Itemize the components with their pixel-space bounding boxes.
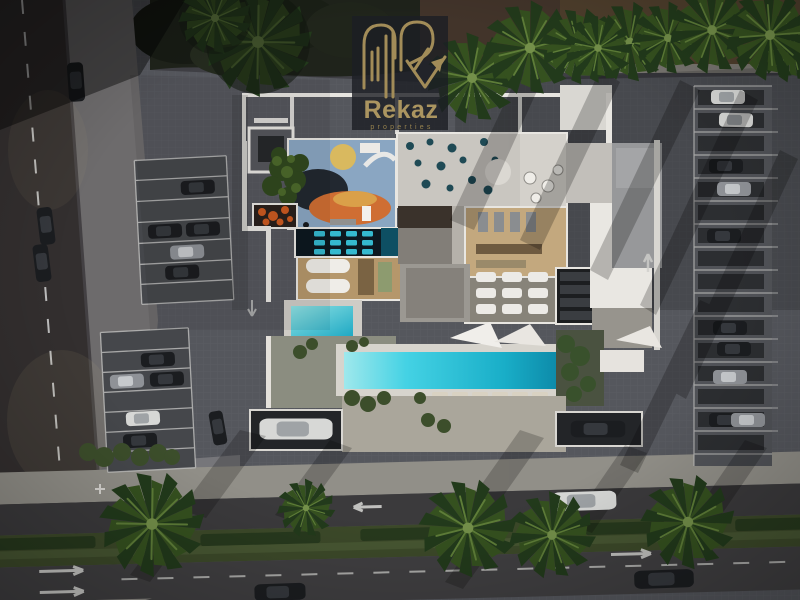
svg-text:Rekaz: Rekaz (364, 96, 439, 124)
svg-text:properties: properties (370, 124, 433, 131)
